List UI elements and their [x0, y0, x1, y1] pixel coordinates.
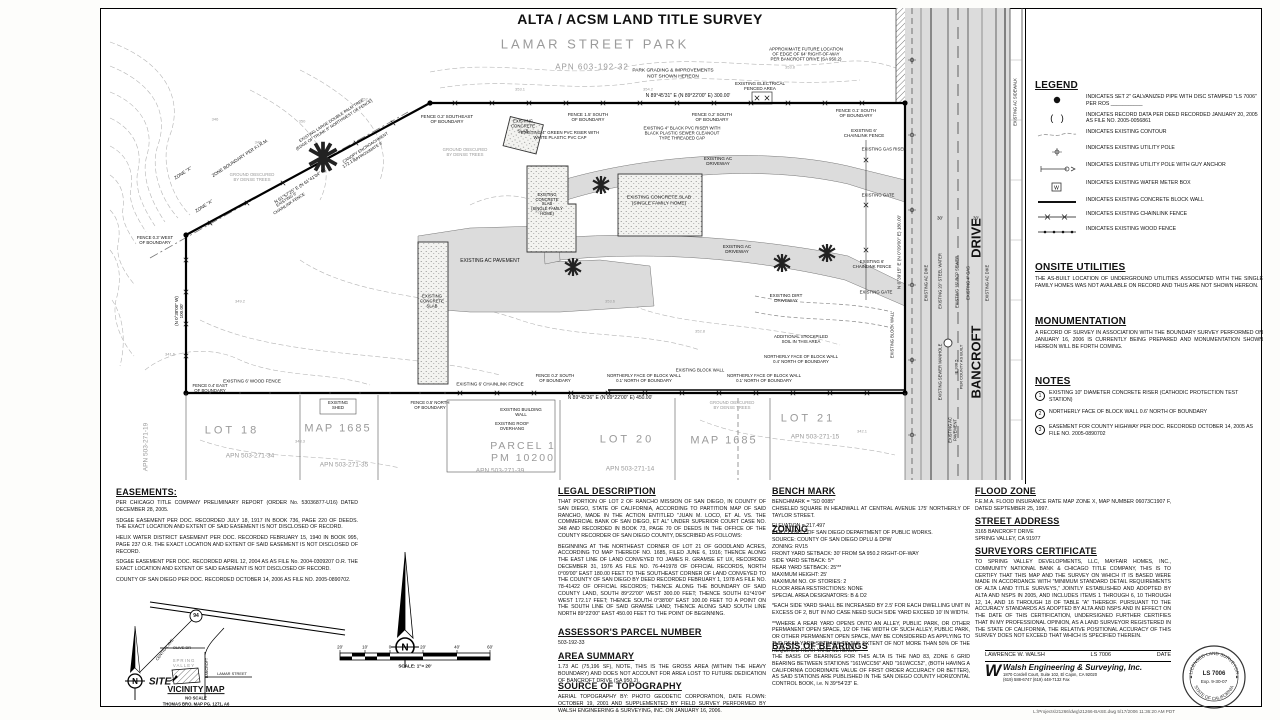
note-item: 3EASEMENT FOR COUNTY HIGHWAY PER DOC. RE… [1035, 424, 1263, 438]
legend-item: INDICATES EXISTING CONTOUR [1035, 129, 1263, 140]
svg-text:LS 7006: LS 7006 [1203, 671, 1226, 677]
text-line: *EACH SIDE YARD SHALL BE INCREASED BY 2.… [772, 603, 970, 617]
zoning-section: ZONING SOURCE: COUNTY OF SAN DIEGO DPLU … [772, 524, 970, 658]
basis-of-bearings-title: BASIS OF BEARINGS [772, 641, 970, 651]
text-line: SDG&E EASEMENT PER DOC. RECORDED APRIL 1… [116, 559, 358, 573]
legend-item: INDICATES EXISTING WOOD FENCE [1035, 226, 1263, 237]
easements-title: EASEMENTS: [116, 487, 358, 497]
legend-item-text: INDICATES EXISTING UTILITY POLE [1086, 145, 1175, 152]
text-line: PER CHICAGO TITLE COMPANY PRELIMINARY RE… [116, 500, 358, 514]
legend-item: INDICATES EXISTING CHAINLINK FENCE [1035, 211, 1263, 222]
wood-legend-symbol [1035, 226, 1079, 237]
text-line: SPRING VALLEY, CA 91977 [975, 536, 1171, 543]
legend-item-text: INDICATES EXISTING WOOD FENCE [1086, 226, 1176, 233]
note-text: EASEMENT FOR COUNTY HIGHWAY PER DOC. REC… [1049, 424, 1263, 438]
text-line: SIDE YARD SETBACK: 5'* [772, 558, 970, 565]
legend-item: WINDICATES EXISTING WATER METER BOX [1035, 180, 1263, 193]
note-item: 1EXISTING 10" DIAMETER CONCRETE RISER (C… [1035, 390, 1263, 404]
legend-item-text: INDICATES EXISTING UTILITY POLE WITH GUY… [1086, 162, 1226, 169]
text-line: SOURCE: COUNTY OF SAN DIEGO DPLU & DPW [772, 537, 970, 544]
zoning-lines: SOURCE: COUNTY OF SAN DIEGO DPLU & DPWZO… [772, 537, 970, 600]
easements-paragraphs: PER CHICAGO TITLE COMPANY PRELIMINARY RE… [116, 500, 358, 584]
flood-zone-title: FLOOD ZONE [975, 486, 1171, 496]
contour-legend-symbol [1035, 129, 1079, 140]
chainlink-legend-symbol [1035, 211, 1079, 222]
svg-text:W: W [1054, 185, 1059, 191]
text-line: MAXIMUM HEIGHT: 25' [772, 572, 970, 579]
onsite-utilities-title: ONSITE UTILITIES [1035, 262, 1263, 273]
easements-section: EASEMENTS: PER CHICAGO TITLE COMPANY PRE… [116, 487, 358, 588]
text-line: THAT PORTION OF LOT 2 OF RANCHO MISSION … [558, 499, 766, 540]
monumentation-title: MONUMENTATION [1035, 316, 1263, 327]
surveyor-name: LAWRENCE W. WALSH [985, 652, 1045, 658]
note-text: NORTHERLY FACE OF BLOCK WALL 0.6' NORTH … [1049, 409, 1207, 420]
monumentation-body: A RECORD OF SURVEY IN ASSOCIATION WITH T… [1035, 330, 1263, 350]
poleguy-legend-symbol [1035, 162, 1079, 175]
zoning-title: ZONING [772, 524, 970, 534]
legend-section: LEGEND INDICATES SET 2" GALVANIZED PIPE … [1035, 80, 1263, 242]
signature-block: LAWRENCE W. WALSH LS 7006 DATE W Walsh E… [985, 650, 1171, 683]
apn-value: 503-192-33 [558, 640, 766, 647]
text-line: SPECIAL AREA DESIGNATORS: B & D2 [772, 593, 970, 600]
legal-description-title: LEGAL DESCRIPTION [558, 486, 766, 496]
text-line: 3165 BANCROFT DRIVE [975, 529, 1171, 536]
note-text: EXISTING 10" DIAMETER CONCRETE RISER (CA… [1049, 390, 1263, 404]
note-number: 1 [1035, 391, 1045, 401]
firm-phones: (619) 588-6747 (619) 448-7132 Fax [1003, 677, 1142, 682]
onsite-utilities-body: THE AS-BUILT LOCATION OF UNDERGROUND UTI… [1035, 276, 1263, 290]
apn-title: ASSESSOR'S PARCEL NUMBER [558, 627, 766, 637]
firm-name: Walsh Engineering & Surveying, Inc. [1003, 664, 1142, 672]
legend-item-text: INDICATES EXISTING CONCRETE BLOCK WALL [1086, 197, 1204, 204]
legal-description-section: LEGAL DESCRIPTION THAT PORTION OF LOT 2 … [558, 486, 766, 622]
legend-item-text: INDICATES SET 2" GALVANIZED PIPE WITH DI… [1086, 94, 1263, 107]
text-line: BENCHMARK = "SD 0085" CHISELED SQUARE IN… [772, 499, 970, 519]
text-line: MAXIMUM NO. OF STORIES: 2 [772, 579, 970, 586]
basis-of-bearings-body: THE BASIS OF BEARINGS FOR THIS ALTA IS T… [772, 654, 970, 688]
svg-text:Exp. 9-30-07: Exp. 9-30-07 [1201, 679, 1228, 684]
note-number: 3 [1035, 425, 1045, 435]
surveyors-certificate-title: SURVEYORS CERTIFICATE [975, 546, 1171, 556]
right-column-divider [1025, 8, 1026, 484]
monumentation-section: MONUMENTATION A RECORD OF SURVEY IN ASSO… [1035, 316, 1263, 354]
parens-legend-symbol: ( ) [1035, 112, 1079, 123]
pole-legend-symbol [1035, 145, 1079, 158]
legend-item: INDICATES EXISTING UTILITY POLE [1035, 145, 1263, 158]
notes-section: NOTES 1EXISTING 10" DIAMETER CONCRETE RI… [1035, 376, 1263, 443]
area-summary-title: AREA SUMMARY [558, 651, 766, 661]
svg-text:STATE OF CALIFORNIA: STATE OF CALIFORNIA [1193, 684, 1235, 701]
meter-legend-symbol: W [1035, 180, 1079, 193]
svg-text:( ): ( ) [1050, 113, 1064, 123]
legend-item: INDICATES EXISTING UTILITY POLE WITH GUY… [1035, 162, 1263, 175]
legend-item: ( )INDICATES RECORD DATA PER DEED RECORD… [1035, 112, 1263, 125]
text-line: FLOOR AREA RESTRICTIONS: NONE [772, 586, 970, 593]
firm-logo: W [985, 664, 1001, 678]
basis-of-bearings-section: BASIS OF BEARINGS THE BASIS OF BEARINGS … [772, 641, 970, 692]
legend-item: INDICATES EXISTING CONCRETE BLOCK WALL [1035, 197, 1263, 206]
text-line: COUNTY OF SAN DIEGO PER DOC. RECORDED OC… [116, 577, 358, 584]
surveyor-seal: LICENSED LAND SURVEYOR STATE OF CALIFORN… [1180, 643, 1248, 711]
note-item: 2NORTHERLY FACE OF BLOCK WALL 0.6' NORTH… [1035, 409, 1263, 420]
surveyors-certificate-body: TO SPRING VALLEY DEVELOPMENTS, LLC, MAYF… [975, 559, 1171, 640]
legend-item: INDICATES SET 2" GALVANIZED PIPE WITH DI… [1035, 94, 1263, 107]
legend-title: LEGEND [1035, 80, 1263, 91]
date-label: DATE [1157, 652, 1171, 658]
legend-item-text: INDICATES EXISTING CONTOUR [1086, 129, 1167, 136]
topography-body: AERIAL TOPOGRAPHY BY: PHOTO GEODETIC COR… [558, 694, 766, 714]
note-number: 2 [1035, 409, 1045, 419]
street-address-lines: 3165 BANCROFT DRIVESPRING VALLEY, CA 919… [975, 529, 1171, 543]
street-address-section: STREET ADDRESS 3165 BANCROFT DRIVESPRING… [975, 516, 1171, 543]
text-line: ZONING: RV15 [772, 544, 970, 551]
legal-description-paragraphs: THAT PORTION OF LOT 2 OF RANCHO MISSION … [558, 499, 766, 618]
bench-mark-title: BENCH MARK [772, 486, 970, 496]
wall-legend-symbol [1035, 197, 1079, 206]
notes-title: NOTES [1035, 376, 1263, 387]
flood-zone-section: FLOOD ZONE F.E.M.A. FLOOD INSURANCE RATE… [975, 486, 1171, 517]
text-line: BEGINNING AT THE NORTHEAST CORNER OF LOT… [558, 544, 766, 618]
surveyor-license: LS 7006 [1091, 652, 1112, 658]
sheet-title: ALTA / ACSM LAND TITLE SURVEY [430, 11, 850, 27]
text-line: SDG&E EASEMENT PER DOC. RECORDED JULY 18… [116, 518, 358, 532]
surveyors-certificate-section: SURVEYORS CERTIFICATE TO SPRING VALLEY D… [975, 546, 1171, 644]
apn-section: ASSESSOR'S PARCEL NUMBER 503-192-33 [558, 627, 766, 651]
topography-title: SOURCE OF TOPOGRAPHY [558, 681, 766, 691]
text-line: REAR YARD SETBACK: 25'** [772, 565, 970, 572]
legend-item-text: INDICATES EXISTING CHAINLINK FENCE [1086, 211, 1187, 218]
topography-section: SOURCE OF TOPOGRAPHY AERIAL TOPOGRAPHY B… [558, 681, 766, 718]
street-address-title: STREET ADDRESS [975, 516, 1171, 526]
flood-zone-body: F.E.M.A. FLOOD INSURANCE RATE MAP ZONE X… [975, 499, 1171, 513]
text-line: HELIX WATER DISTRICT EASEMENT PER DOC. R… [116, 535, 358, 555]
legend-item-text: INDICATES EXISTING WATER METER BOX [1086, 180, 1191, 187]
legend-item-text: INDICATES RECORD DATA PER DEED RECORDED … [1086, 112, 1263, 125]
onsite-utilities-section: ONSITE UTILITIES THE AS-BUILT LOCATION O… [1035, 262, 1263, 294]
plot-file-info: L:\Projects\21266\dwg\21266-BASE.dwg 5/1… [890, 709, 1175, 714]
text-line: FRONT YARD SETBACK: 30' FROM SA 950.2 RI… [772, 551, 970, 558]
dot-legend-symbol [1035, 94, 1079, 105]
